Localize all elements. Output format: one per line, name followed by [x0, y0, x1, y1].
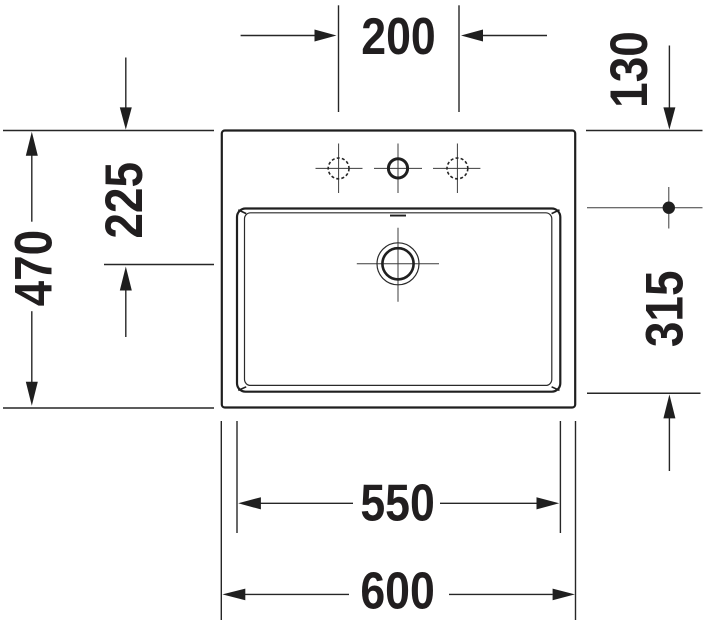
svg-text:200: 200: [361, 8, 435, 66]
svg-text:600: 600: [360, 563, 434, 621]
svg-text:225: 225: [94, 162, 154, 239]
svg-text:550: 550: [360, 474, 434, 532]
svg-text:315: 315: [635, 270, 695, 347]
svg-text:470: 470: [3, 230, 63, 307]
svg-text:130: 130: [599, 31, 659, 108]
